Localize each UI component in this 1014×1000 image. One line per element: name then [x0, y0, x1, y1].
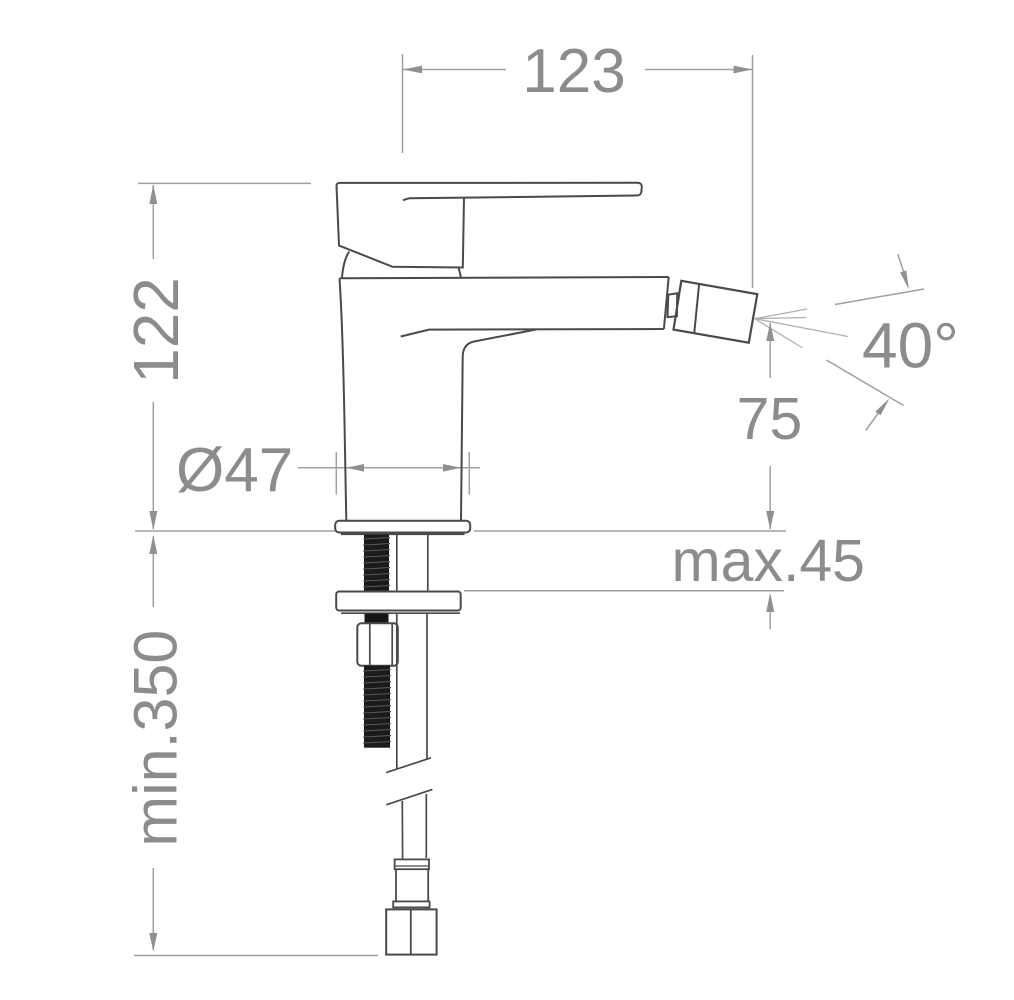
svg-text:max.45: max.45 [672, 528, 865, 594]
svg-text:123: 123 [522, 37, 625, 106]
svg-text:Ø47: Ø47 [176, 436, 293, 505]
svg-text:min.350: min.350 [122, 630, 190, 847]
svg-text:75: 75 [737, 386, 803, 452]
svg-text:40°: 40° [862, 310, 959, 382]
svg-text:122: 122 [120, 277, 192, 384]
